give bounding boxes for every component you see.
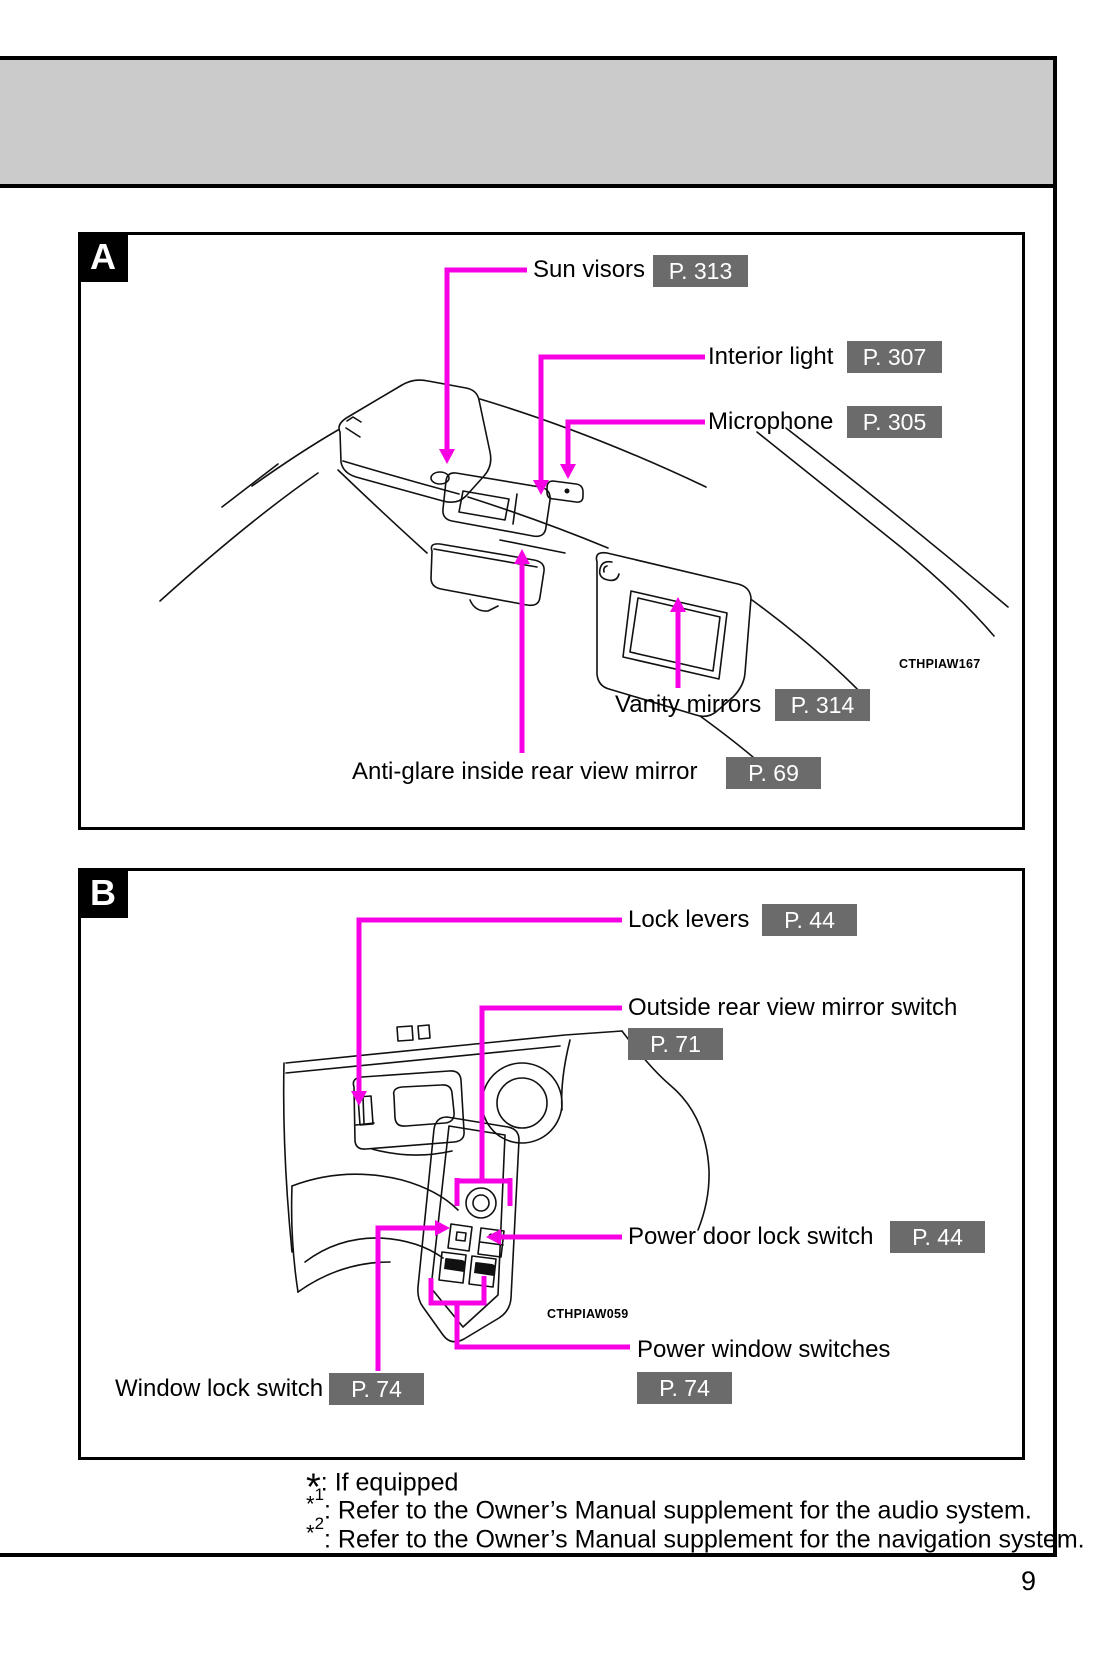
footnote-text: : Refer to the Owner’s Manual supplement… [324, 1525, 1085, 1553]
page-ref-badge-lock-levers: P. 44 [762, 904, 857, 936]
footnote-sup: 2 [315, 1514, 324, 1533]
footnote-navigation-supplement: *2: Refer to the Owner’s Manual suppleme… [306, 1519, 1085, 1553]
callout-anti-glare-mirror: Anti-glare inside rear view mirror [352, 758, 697, 786]
page-ref-badge-mirror-switch: P. 71 [628, 1028, 723, 1060]
asterisk-marker: * [306, 1491, 315, 1516]
header-band [0, 56, 1053, 188]
callout-power-door-lock: Power door lock switch [628, 1223, 873, 1251]
panel-B-label: B [78, 868, 128, 918]
callout-lock-levers: Lock levers [628, 906, 749, 934]
callout-mirror-switch: Outside rear view mirror switch [628, 994, 957, 1022]
page-ref-badge-microphone: P. 305 [847, 406, 942, 438]
callout-interior-light: Interior light [708, 343, 833, 371]
page-ref-badge-anti-glare-mirror: P. 69 [726, 757, 821, 789]
page-ref-badge-sun-visors: P. 313 [653, 255, 748, 287]
page-ref-badge-vanity-mirrors: P. 314 [775, 689, 870, 721]
callout-vanity-mirrors: Vanity mirrors [615, 691, 761, 719]
panel-A [78, 232, 1025, 830]
asterisk-marker: * [306, 1520, 315, 1545]
image-code-A: CTHPIAW167 [899, 657, 981, 671]
callout-window-lock-switch: Window lock switch [115, 1375, 323, 1403]
footnote-sup: 1 [315, 1485, 324, 1504]
callout-power-window-switches: Power window switches [637, 1336, 890, 1364]
panel-B [78, 868, 1025, 1460]
page-ref-badge-window-lock-switch: P. 74 [329, 1373, 424, 1405]
callout-sun-visors: Sun visors [533, 256, 645, 284]
page-right-rule [1053, 56, 1057, 1557]
page-ref-badge-power-door-lock: P. 44 [890, 1221, 985, 1253]
page-bottom-rule [0, 1553, 1057, 1557]
callout-microphone: Microphone [708, 408, 833, 436]
page-number: 9 [1000, 1566, 1036, 1597]
page-ref-badge-interior-light: P. 307 [847, 341, 942, 373]
panel-A-label: A [78, 232, 128, 282]
page-ref-badge-power-window-switches: P. 74 [637, 1372, 732, 1404]
manual-page: A B [0, 0, 1103, 1654]
image-code-B: CTHPIAW059 [547, 1307, 629, 1321]
